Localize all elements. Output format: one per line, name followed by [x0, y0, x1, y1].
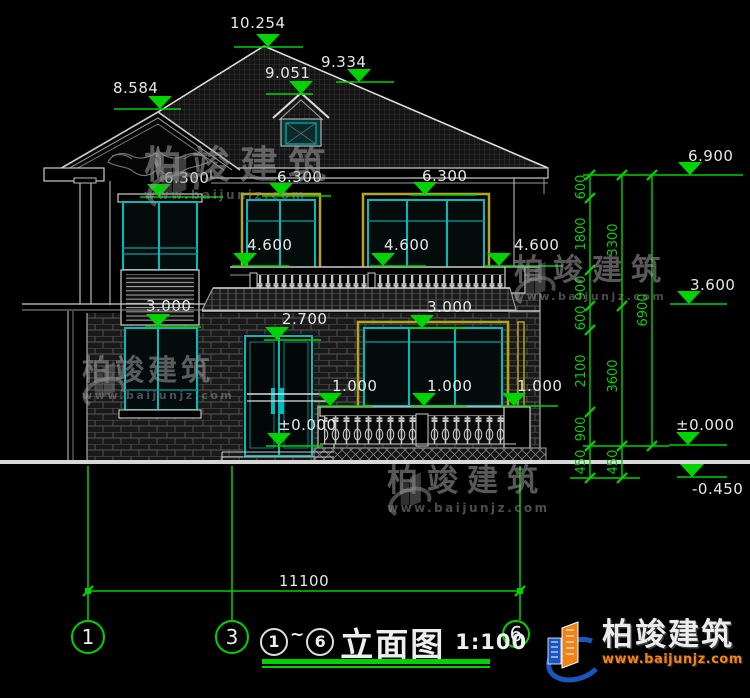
level-win1-right: 3.000 [427, 298, 472, 316]
dim-1800: 1800 [574, 217, 589, 250]
title-axis-start-bubble: 1 [260, 628, 288, 656]
elevation-sheet: 10.254 9.334 9.051 8.584 6.300 6.300 6.3… [0, 0, 750, 698]
floor2-window-left [242, 194, 320, 270]
dim-600a: 600 [574, 175, 589, 200]
window-sill [119, 410, 201, 418]
terrace-plinth [314, 448, 546, 462]
dim-600b: 600 [574, 306, 589, 331]
level-ground-neg: -0.450 [692, 480, 743, 498]
level-right-floor2: 3.600 [690, 276, 735, 294]
title-scale: 1:100 [455, 630, 527, 654]
dim-450b: 450 [606, 450, 621, 475]
dimension-chain-labels: 600 1800 900 600 2100 900 450 3300 3600 … [574, 175, 651, 475]
brand-name: 柏竣建筑 [602, 618, 743, 652]
balcony-balustrade [250, 275, 505, 289]
level-rail-2: 1.000 [427, 377, 472, 395]
axis-grid-lines [88, 466, 520, 620]
level-right-top: 6.900 [688, 147, 733, 165]
dim-3300: 3300 [606, 223, 621, 256]
axis-3: 3 [226, 625, 239, 649]
level-door-head: 2.700 [282, 310, 327, 328]
dim-2100: 2100 [574, 354, 589, 387]
level-zero-right: ±0.000 [676, 416, 735, 434]
level-sill2-mid: 4.600 [384, 236, 429, 254]
brand-logo: 柏竣建筑 www.baijunjz.com [538, 618, 746, 694]
level-eave-left: 6.300 [164, 169, 209, 187]
eave-band [211, 168, 548, 194]
stair-window-lower [125, 328, 197, 410]
dim-900a: 900 [574, 276, 589, 301]
title-axis-end-bubble: 6 [306, 628, 334, 656]
level-sill2-right: 4.600 [514, 236, 559, 254]
level-eave-right: 6.300 [422, 167, 467, 185]
dim-450a: 450 [574, 450, 589, 475]
axis-1: 1 [82, 625, 95, 649]
level-rail-1: 1.000 [332, 377, 377, 395]
title-underline-thick [262, 659, 490, 664]
level-ridge: 10.254 [230, 14, 286, 32]
terrace-balustrade [314, 407, 546, 462]
first-floor-awning [202, 288, 540, 311]
dim-6900: 6900 [636, 293, 651, 326]
elevation-drawing: 10.254 9.334 9.051 8.584 6.300 6.300 6.3… [0, 0, 750, 698]
level-rail-3: 1.000 [517, 377, 562, 395]
level-dormer: 9.051 [265, 64, 310, 82]
total-width-dim: 11100 [279, 572, 329, 590]
level-roof-right: 9.334 [321, 53, 366, 71]
ground-line [0, 460, 750, 464]
brand-website: www.baijunjz.com [602, 652, 743, 667]
level-zero-door: ±0.000 [278, 416, 337, 434]
level-gable: 8.584 [113, 79, 158, 97]
level-win1-left: 3.000 [146, 297, 191, 315]
title-range-tilde: ~ [290, 625, 304, 645]
dim-900b: 900 [574, 417, 589, 442]
dim-3600: 3600 [606, 359, 621, 392]
level-eave-mid: 6.300 [277, 168, 322, 186]
level-sill2-left: 4.600 [247, 236, 292, 254]
stair-window-upper [123, 202, 197, 270]
title-underline-thin [262, 666, 490, 668]
